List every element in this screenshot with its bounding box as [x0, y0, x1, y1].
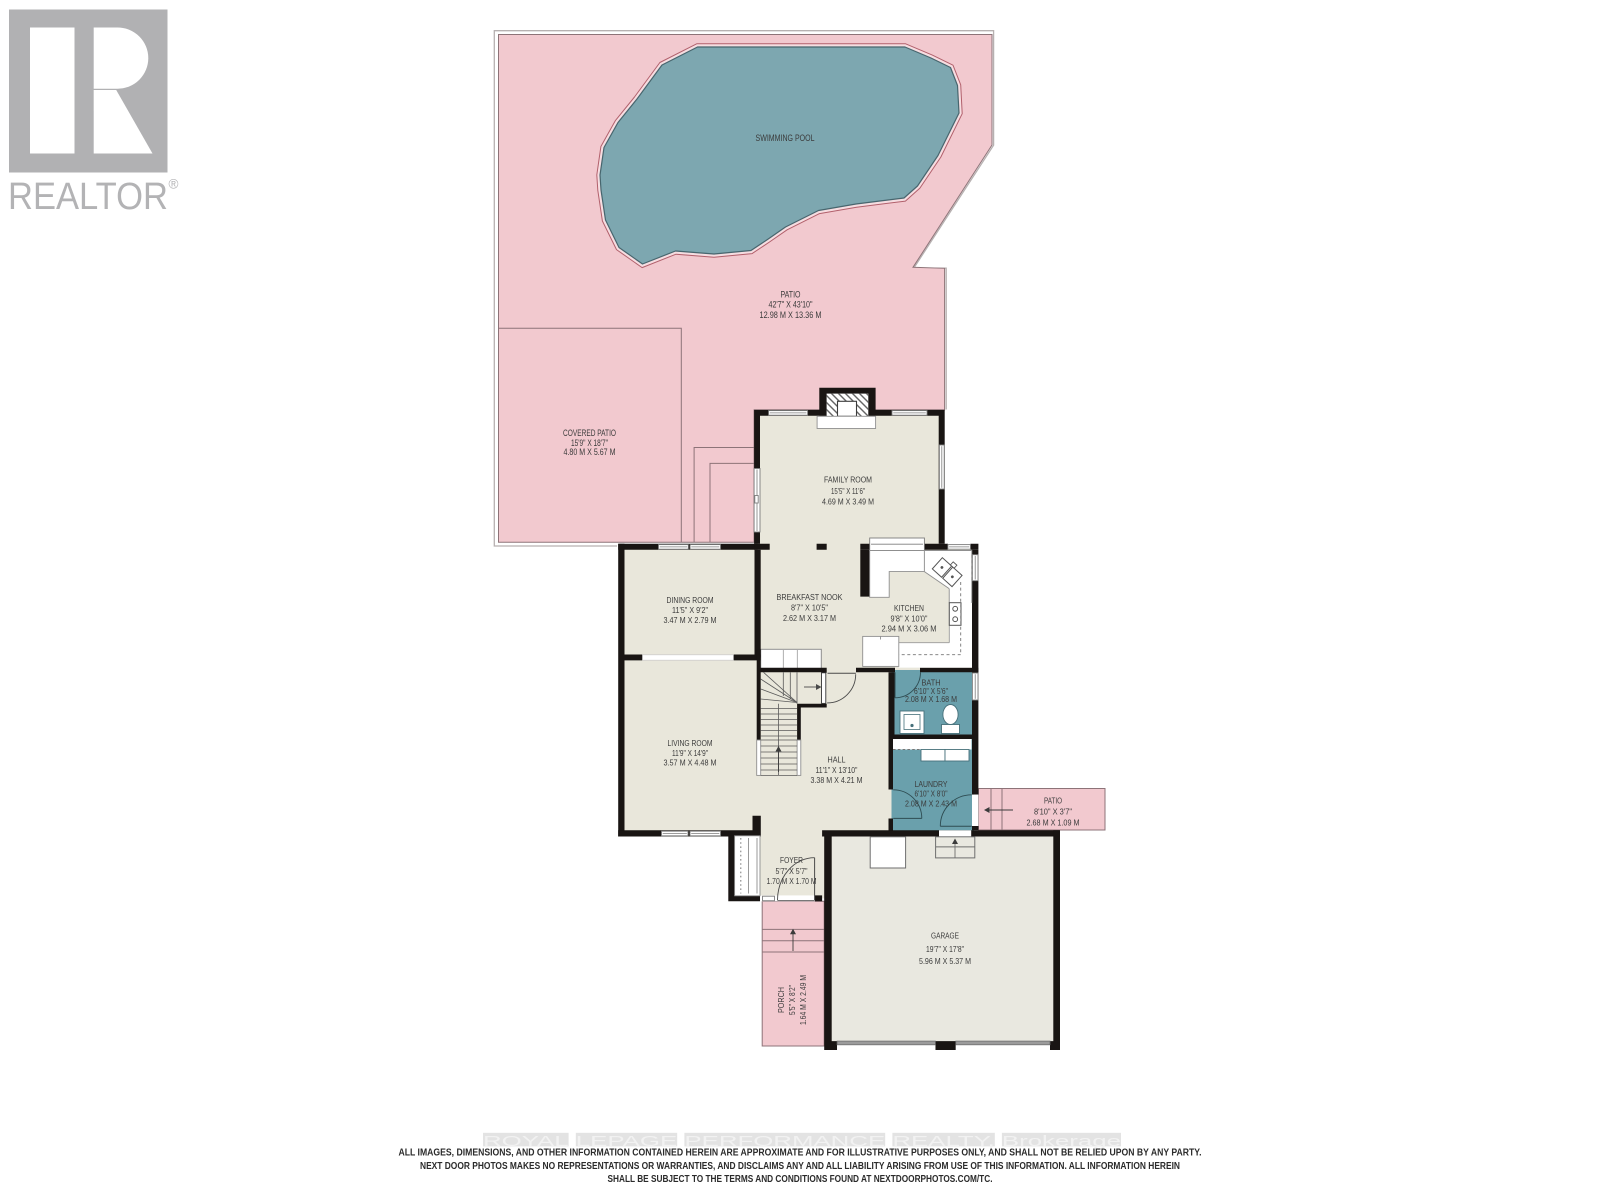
svg-text:®: ®: [169, 177, 179, 192]
svg-text:3.57 M X 4.48 M: 3.57 M X 4.48 M: [664, 757, 717, 767]
svg-text:1.64 M X 2.49 M: 1.64 M X 2.49 M: [799, 975, 808, 1025]
svg-text:FAMILY ROOM: FAMILY ROOM: [824, 475, 872, 485]
svg-text:PORCH: PORCH: [777, 987, 786, 1013]
svg-text:HALL: HALL: [828, 755, 846, 765]
svg-text:19'7" X 17'8": 19'7" X 17'8": [926, 944, 964, 954]
svg-text:5.96 M X 5.37 M: 5.96 M X 5.37 M: [919, 956, 971, 966]
svg-text:PATIO: PATIO: [1044, 796, 1062, 806]
svg-text:FOYER: FOYER: [780, 855, 803, 865]
svg-text:1.70 M X 1.70 M: 1.70 M X 1.70 M: [767, 876, 817, 886]
svg-text:5'5" X 8'2": 5'5" X 8'2": [788, 985, 797, 1015]
svg-text:PATIO: PATIO: [781, 290, 801, 300]
svg-text:6'10" X 8'0": 6'10" X 8'0": [915, 789, 948, 799]
svg-text:42'7" X 43'10": 42'7" X 43'10": [769, 300, 813, 310]
svg-text:SHALL BE SUBJECT TO THE TERMS: SHALL BE SUBJECT TO THE TERMS AND CONDIT…: [608, 1174, 993, 1185]
svg-text:NEXT DOOR PHOTOS MAKES NO REPR: NEXT DOOR PHOTOS MAKES NO REPRESENTATION…: [420, 1161, 1180, 1172]
svg-text:COVERED PATIO: COVERED PATIO: [563, 428, 616, 438]
svg-text:KITCHEN: KITCHEN: [894, 603, 924, 613]
svg-text:3.38 M X 4.21 M: 3.38 M X 4.21 M: [811, 775, 863, 785]
svg-text:SWIMMING POOL: SWIMMING POOL: [756, 133, 815, 143]
svg-text:11'5" X 9'2": 11'5" X 9'2": [672, 605, 708, 615]
svg-text:2.94 M X 3.06 M: 2.94 M X 3.06 M: [882, 624, 937, 634]
svg-text:2.68 M X 1.09 M: 2.68 M X 1.09 M: [1027, 818, 1080, 828]
svg-text:LAUNDRY: LAUNDRY: [915, 779, 948, 789]
svg-text:9'8" X 10'0": 9'8" X 10'0": [891, 613, 928, 623]
svg-text:12.98 M X 13.36 M: 12.98 M X 13.36 M: [760, 310, 822, 320]
svg-text:LIVING ROOM: LIVING ROOM: [668, 738, 713, 748]
svg-text:ALL IMAGES, DIMENSIONS, AND OT: ALL IMAGES, DIMENSIONS, AND OTHER INFORM…: [399, 1148, 1202, 1159]
svg-text:15'5" X 11'6": 15'5" X 11'6": [831, 486, 865, 496]
svg-text:8'7" X 10'5": 8'7" X 10'5": [791, 603, 828, 613]
svg-text:5'7" X 5'7": 5'7" X 5'7": [776, 866, 808, 876]
svg-text:4.69 M X 3.49 M: 4.69 M X 3.49 M: [822, 496, 874, 506]
svg-text:4.80 M X 5.67 M: 4.80 M X 5.67 M: [564, 447, 616, 457]
svg-text:3.47 M X 2.79 M: 3.47 M X 2.79 M: [664, 615, 717, 625]
svg-text:REALTOR: REALTOR: [8, 176, 168, 218]
svg-text:2.08 M X 2.43 M: 2.08 M X 2.43 M: [905, 799, 957, 809]
svg-text:11'9" X 14'9": 11'9" X 14'9": [672, 748, 708, 758]
svg-text:GARAGE: GARAGE: [931, 931, 959, 941]
svg-text:BREAKFAST NOOK: BREAKFAST NOOK: [777, 592, 843, 602]
svg-text:2.08 M X 1.68 M: 2.08 M X 1.68 M: [905, 694, 957, 704]
svg-text:2.62 M X 3.17 M: 2.62 M X 3.17 M: [783, 613, 836, 623]
svg-text:DINING ROOM: DINING ROOM: [667, 595, 714, 605]
svg-text:11'1" X 13'10": 11'1" X 13'10": [816, 765, 858, 775]
svg-text:8'10" X 3'7": 8'10" X 3'7": [1034, 807, 1072, 817]
